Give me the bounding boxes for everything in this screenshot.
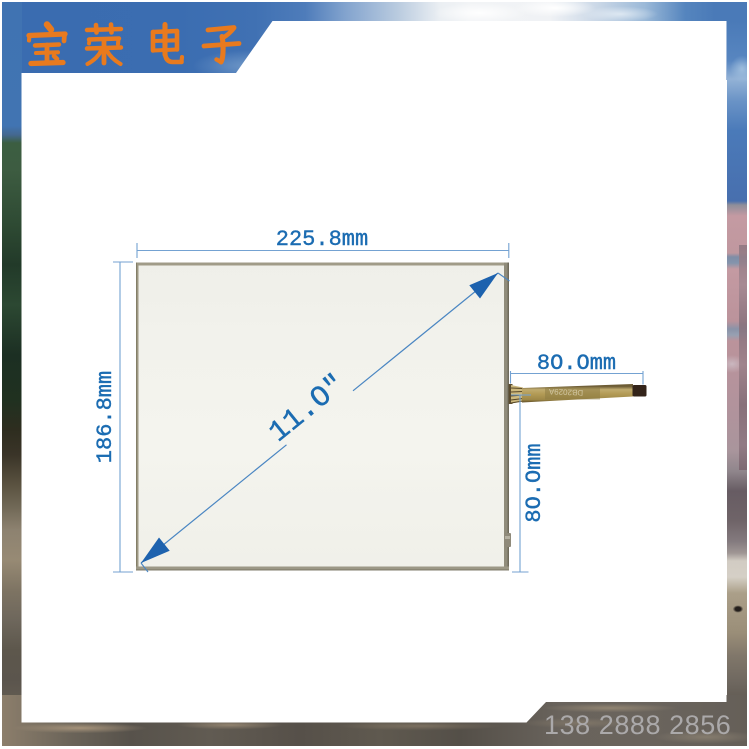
- svg-text:186.8mm: 186.8mm: [93, 371, 118, 463]
- svg-text:8O.Omm: 8O.Omm: [537, 351, 616, 376]
- svg-text:8O.Omm: 8O.Omm: [522, 443, 547, 522]
- svg-text:DB2029A: DB2029A: [548, 387, 583, 397]
- svg-text:225.8mm: 225.8mm: [276, 227, 368, 252]
